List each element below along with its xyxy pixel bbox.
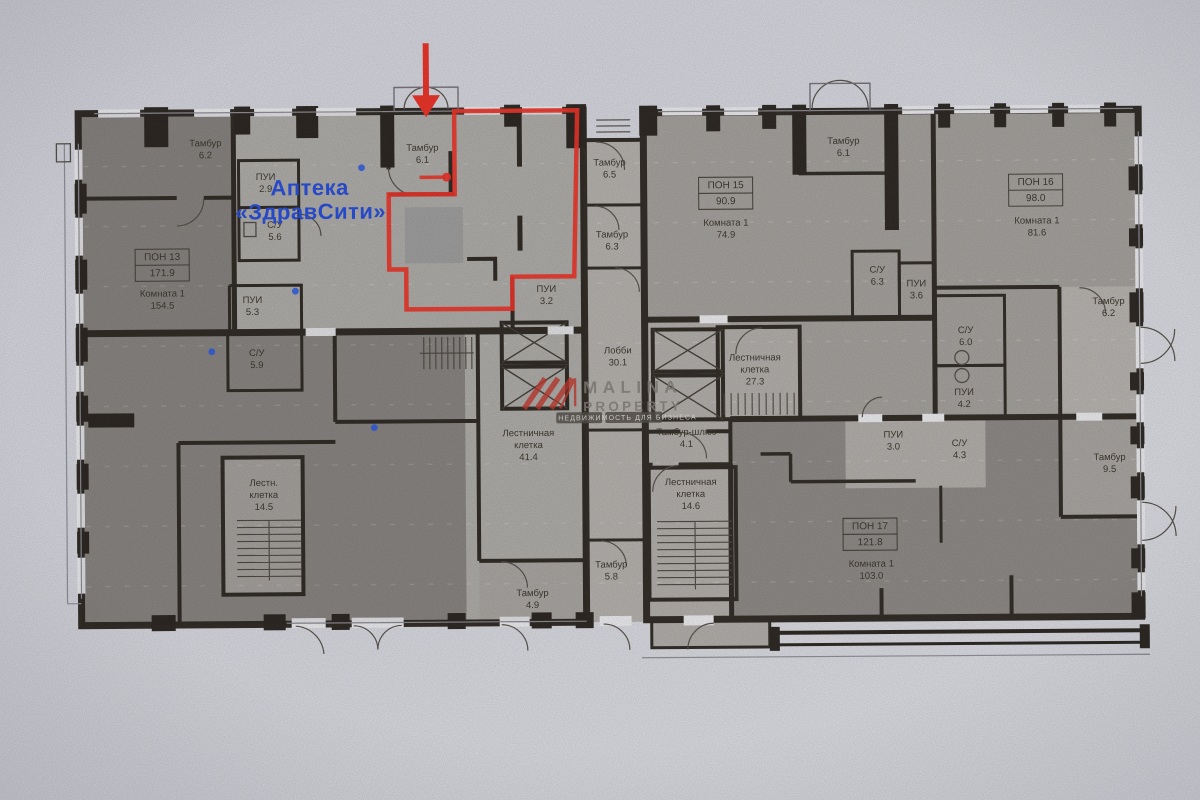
floorplan-photo: Тамбур6.2ПОН 13171.9Комната 1154.5ПУИ2.9… [0,0,1200,800]
photo-vignette [0,0,1200,800]
floorplan-svg: Тамбур6.2ПОН 13171.9Комната 1154.5ПУИ2.9… [0,0,1200,800]
